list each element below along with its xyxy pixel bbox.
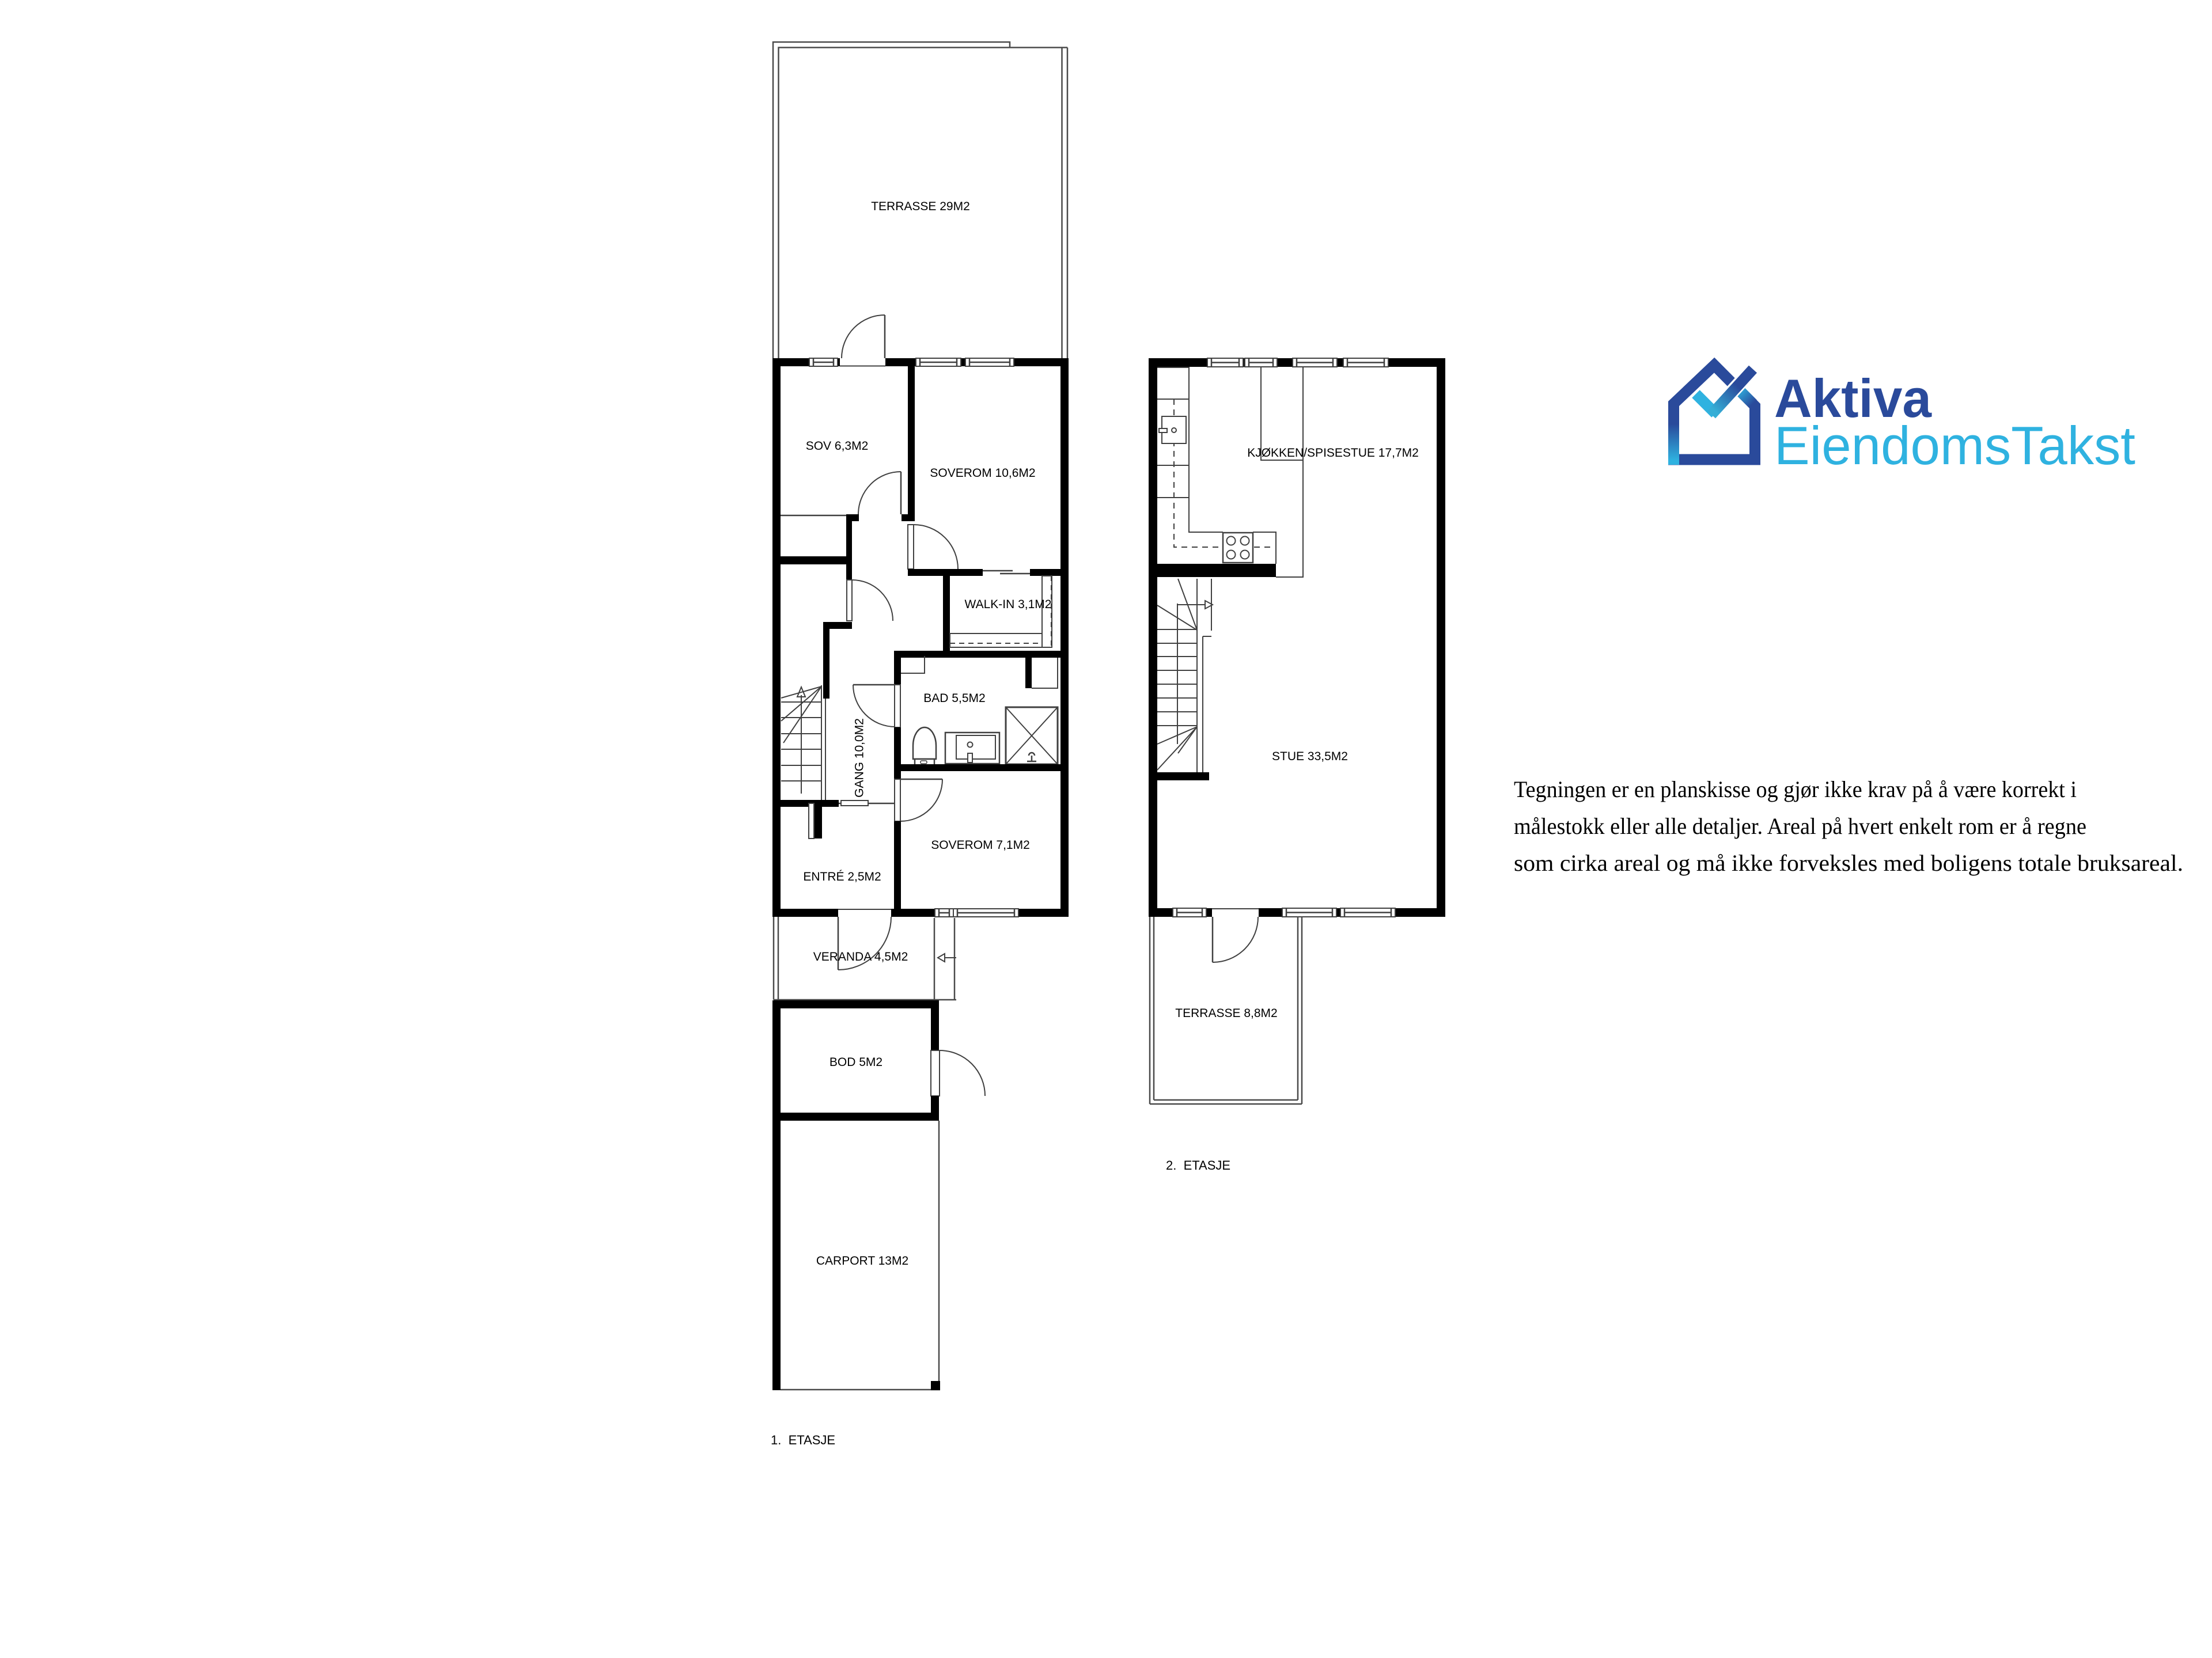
svg-text:1. ETASJE: 1. ETASJE <box>771 1433 835 1447</box>
svg-text:TERRASSE 29M2: TERRASSE 29M2 <box>871 200 970 213</box>
svg-text:WALK-IN 3,1M2: WALK-IN 3,1M2 <box>965 598 1052 611</box>
svg-text:KJØKKEN/SPISESTUE 17,7M2: KJØKKEN/SPISESTUE 17,7M2 <box>1247 446 1419 460</box>
svg-text:SOVEROM 10,6M2: SOVEROM 10,6M2 <box>930 466 1035 480</box>
svg-text:VERANDA 4,5M2: VERANDA 4,5M2 <box>813 950 908 963</box>
svg-text:CARPORT 13M2: CARPORT 13M2 <box>816 1254 908 1268</box>
svg-text:STUE 33,5M2: STUE 33,5M2 <box>1272 750 1348 763</box>
svg-text:Tegningen er en planskisse og: Tegningen er en planskisse og gjør ikke … <box>1514 776 2077 802</box>
svg-text:SOV 6,3M2: SOV 6,3M2 <box>806 439 869 453</box>
svg-text:BOD 5M2: BOD 5M2 <box>829 1056 882 1069</box>
svg-text:2. ETASJE: 2. ETASJE <box>1166 1158 1230 1173</box>
svg-text:EiendomsTakst: EiendomsTakst <box>1774 415 2135 476</box>
svg-text:som cirka areal og må ikke for: som cirka areal og må ikke forveksles me… <box>1514 850 2183 876</box>
svg-text:BAD 5,5M2: BAD 5,5M2 <box>923 692 985 705</box>
svg-text:ENTRÉ 2,5M2: ENTRÉ 2,5M2 <box>803 870 881 883</box>
svg-text:målestokk eller alle detaljer.: målestokk eller alle detaljer. Areal på … <box>1514 813 2086 839</box>
svg-text:TERRASSE 8,8M2: TERRASSE 8,8M2 <box>1175 1007 1277 1020</box>
svg-text:SOVEROM 7,1M2: SOVEROM 7,1M2 <box>931 839 1030 852</box>
svg-text:GANG 10,0M2: GANG 10,0M2 <box>853 718 866 798</box>
